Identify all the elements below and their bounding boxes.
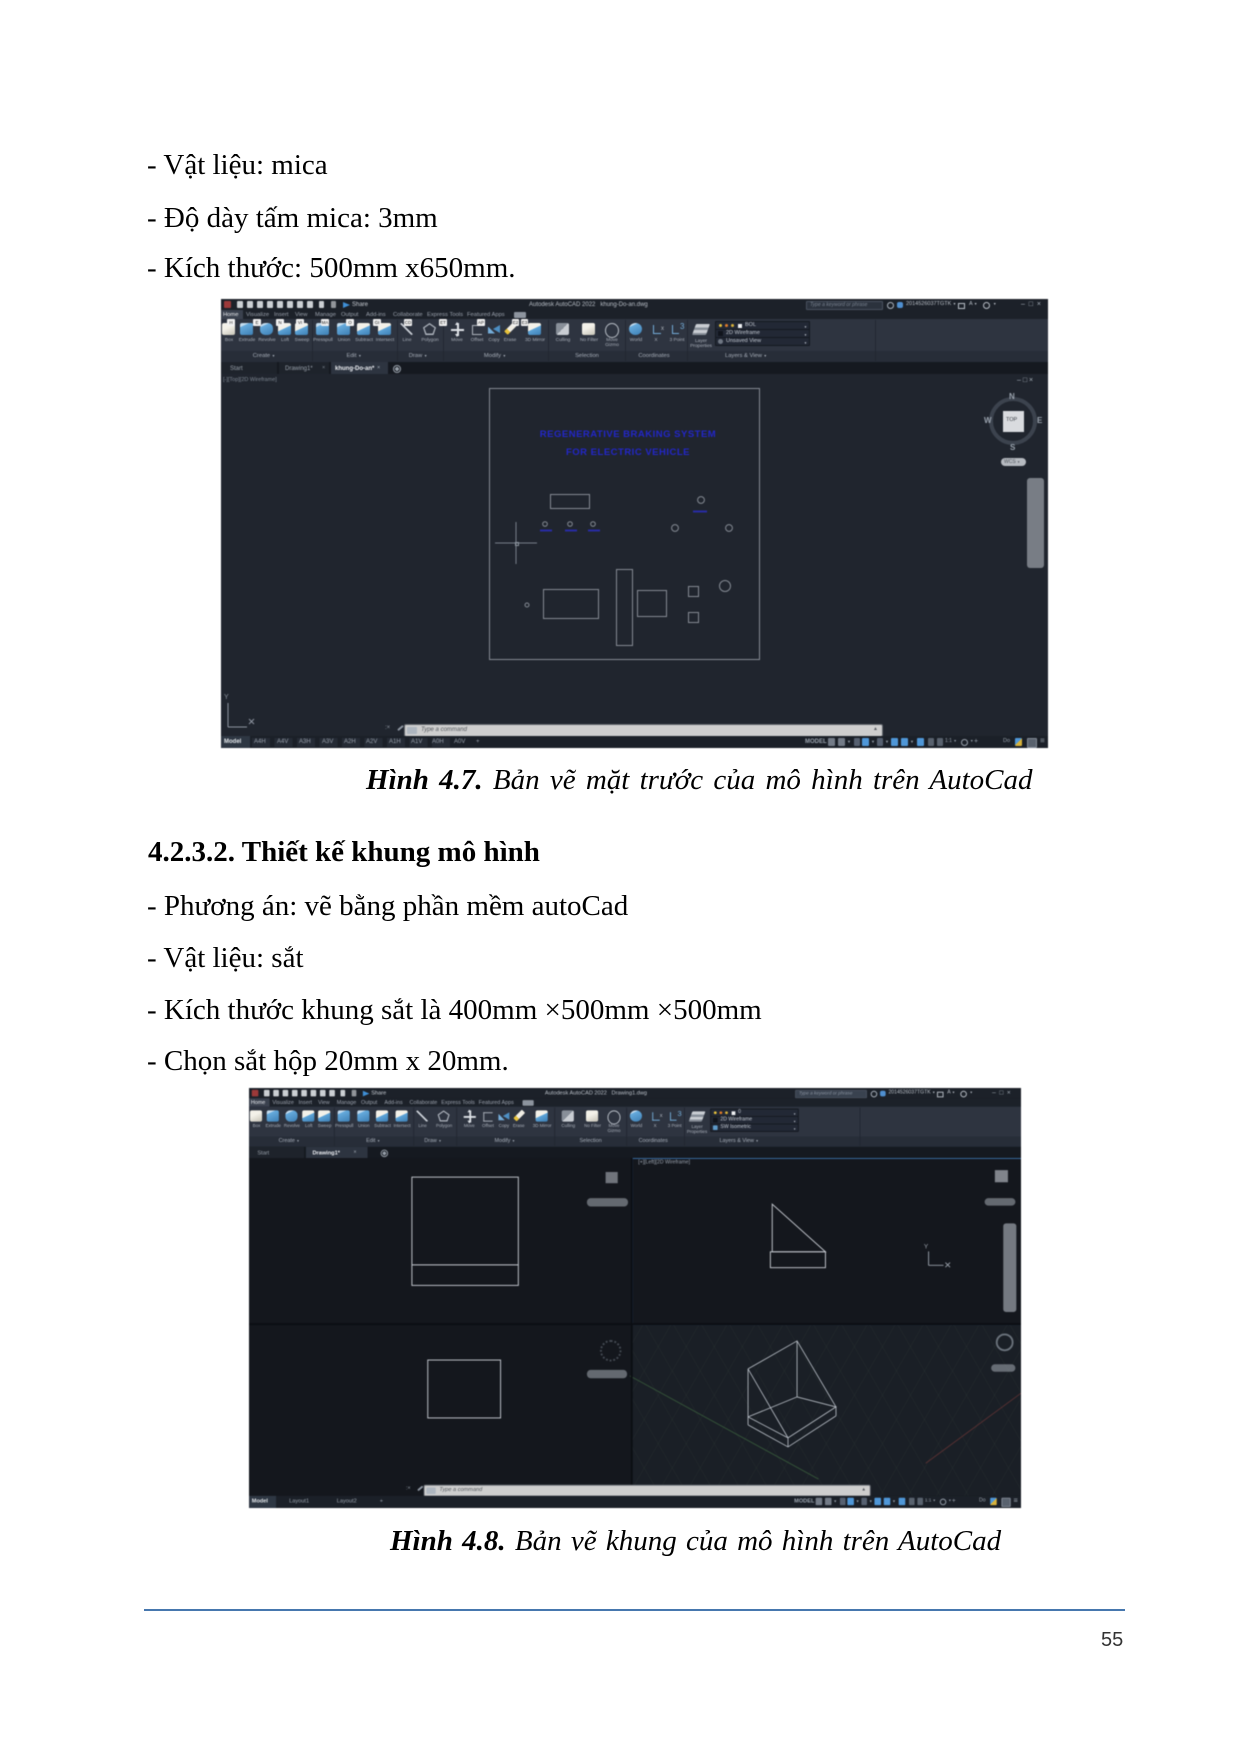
- svg-text:Y: Y: [224, 694, 229, 701]
